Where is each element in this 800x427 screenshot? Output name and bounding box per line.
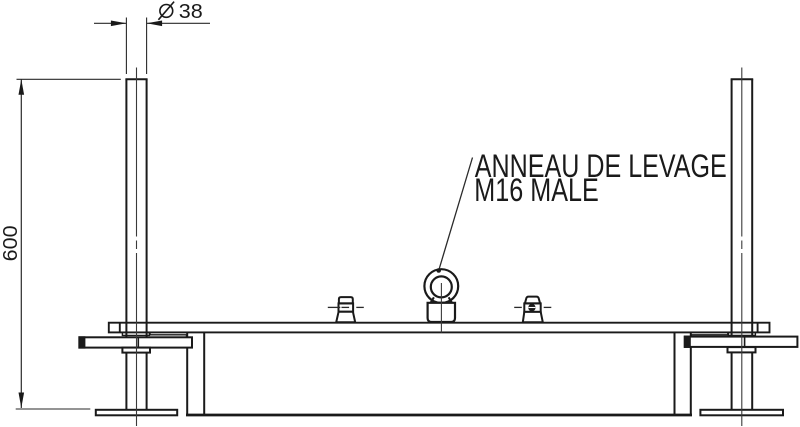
svg-text:600: 600 (0, 225, 22, 261)
svg-text:M16 MALE: M16 MALE (474, 172, 599, 208)
svg-text:38: 38 (179, 1, 203, 23)
